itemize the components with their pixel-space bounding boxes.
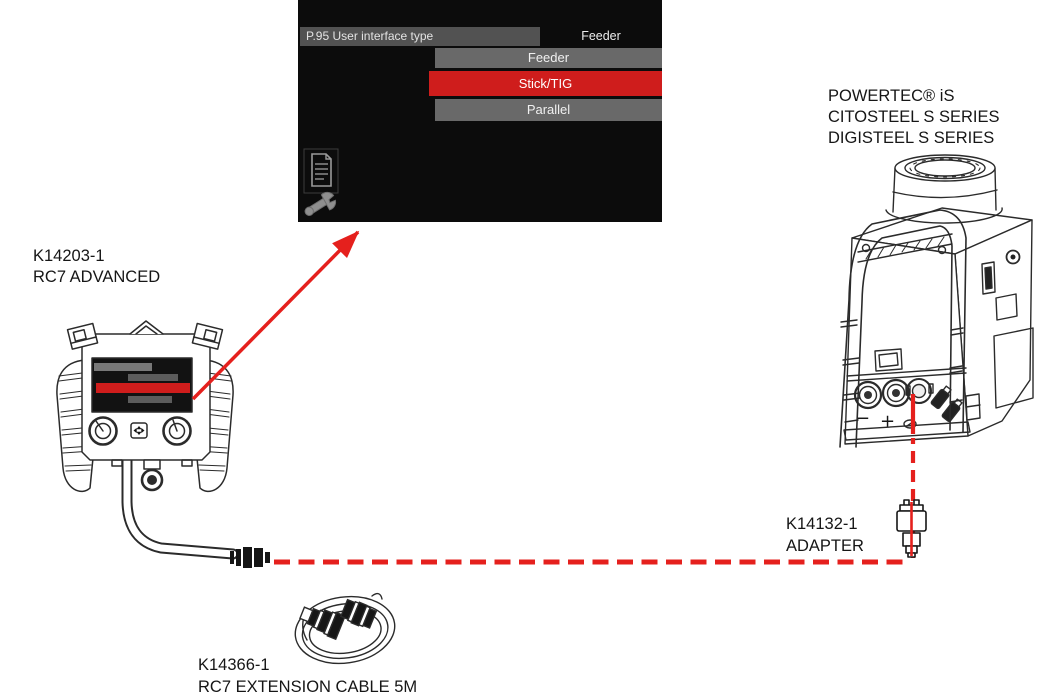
parameter-current-value: Feeder [548, 27, 654, 46]
remote-part-number: K14203-1 [33, 246, 160, 267]
connection-diagram: − + [0, 0, 1037, 696]
dropdown-option-parallel[interactable]: Parallel [435, 99, 662, 121]
rc7-remote-illustration [57, 321, 270, 568]
remote-name: RC7 ADVANCED [33, 267, 160, 288]
dropdown-option-stick-tig-selected[interactable]: Stick/TIG [429, 71, 662, 96]
adapter-illustration [897, 500, 926, 557]
remote-screen [92, 358, 192, 412]
extension-cable-label: K14366-1 RC7 EXTENSION CABLE 5M [198, 654, 417, 696]
adapter-name: ADAPTER [786, 535, 864, 557]
power-source-illustration: − + [840, 155, 1033, 447]
dropdown-option-feeder[interactable]: Feeder [435, 48, 662, 68]
power-source-line-1: POWERTEC® iS [828, 86, 999, 107]
power-source-line-3: DIGISTEEL S SERIES [828, 128, 999, 149]
extension-cable-name: RC7 EXTENSION CABLE 5M [198, 676, 417, 696]
positive-terminal-label: + [880, 411, 895, 432]
menu-panel-screenshot: P.95 User interface type Feeder Feeder S… [298, 0, 662, 222]
wrench-icon [298, 186, 342, 222]
screen-callout-arrow [193, 232, 358, 399]
adapter-part-number: K14132-1 [786, 513, 864, 535]
power-source-line-2: CITOSTEEL S SERIES [828, 107, 999, 128]
power-source-label: POWERTEC® iS CITOSTEEL S SERIES DIGISTEE… [828, 86, 999, 149]
remote-cable-connector [230, 547, 270, 568]
extension-cable-part-number: K14366-1 [198, 654, 417, 676]
remote-label: K14203-1 RC7 ADVANCED [33, 246, 160, 288]
parameter-header: P.95 User interface type [300, 27, 540, 46]
adapter-label: K14132-1 ADAPTER [786, 513, 864, 557]
